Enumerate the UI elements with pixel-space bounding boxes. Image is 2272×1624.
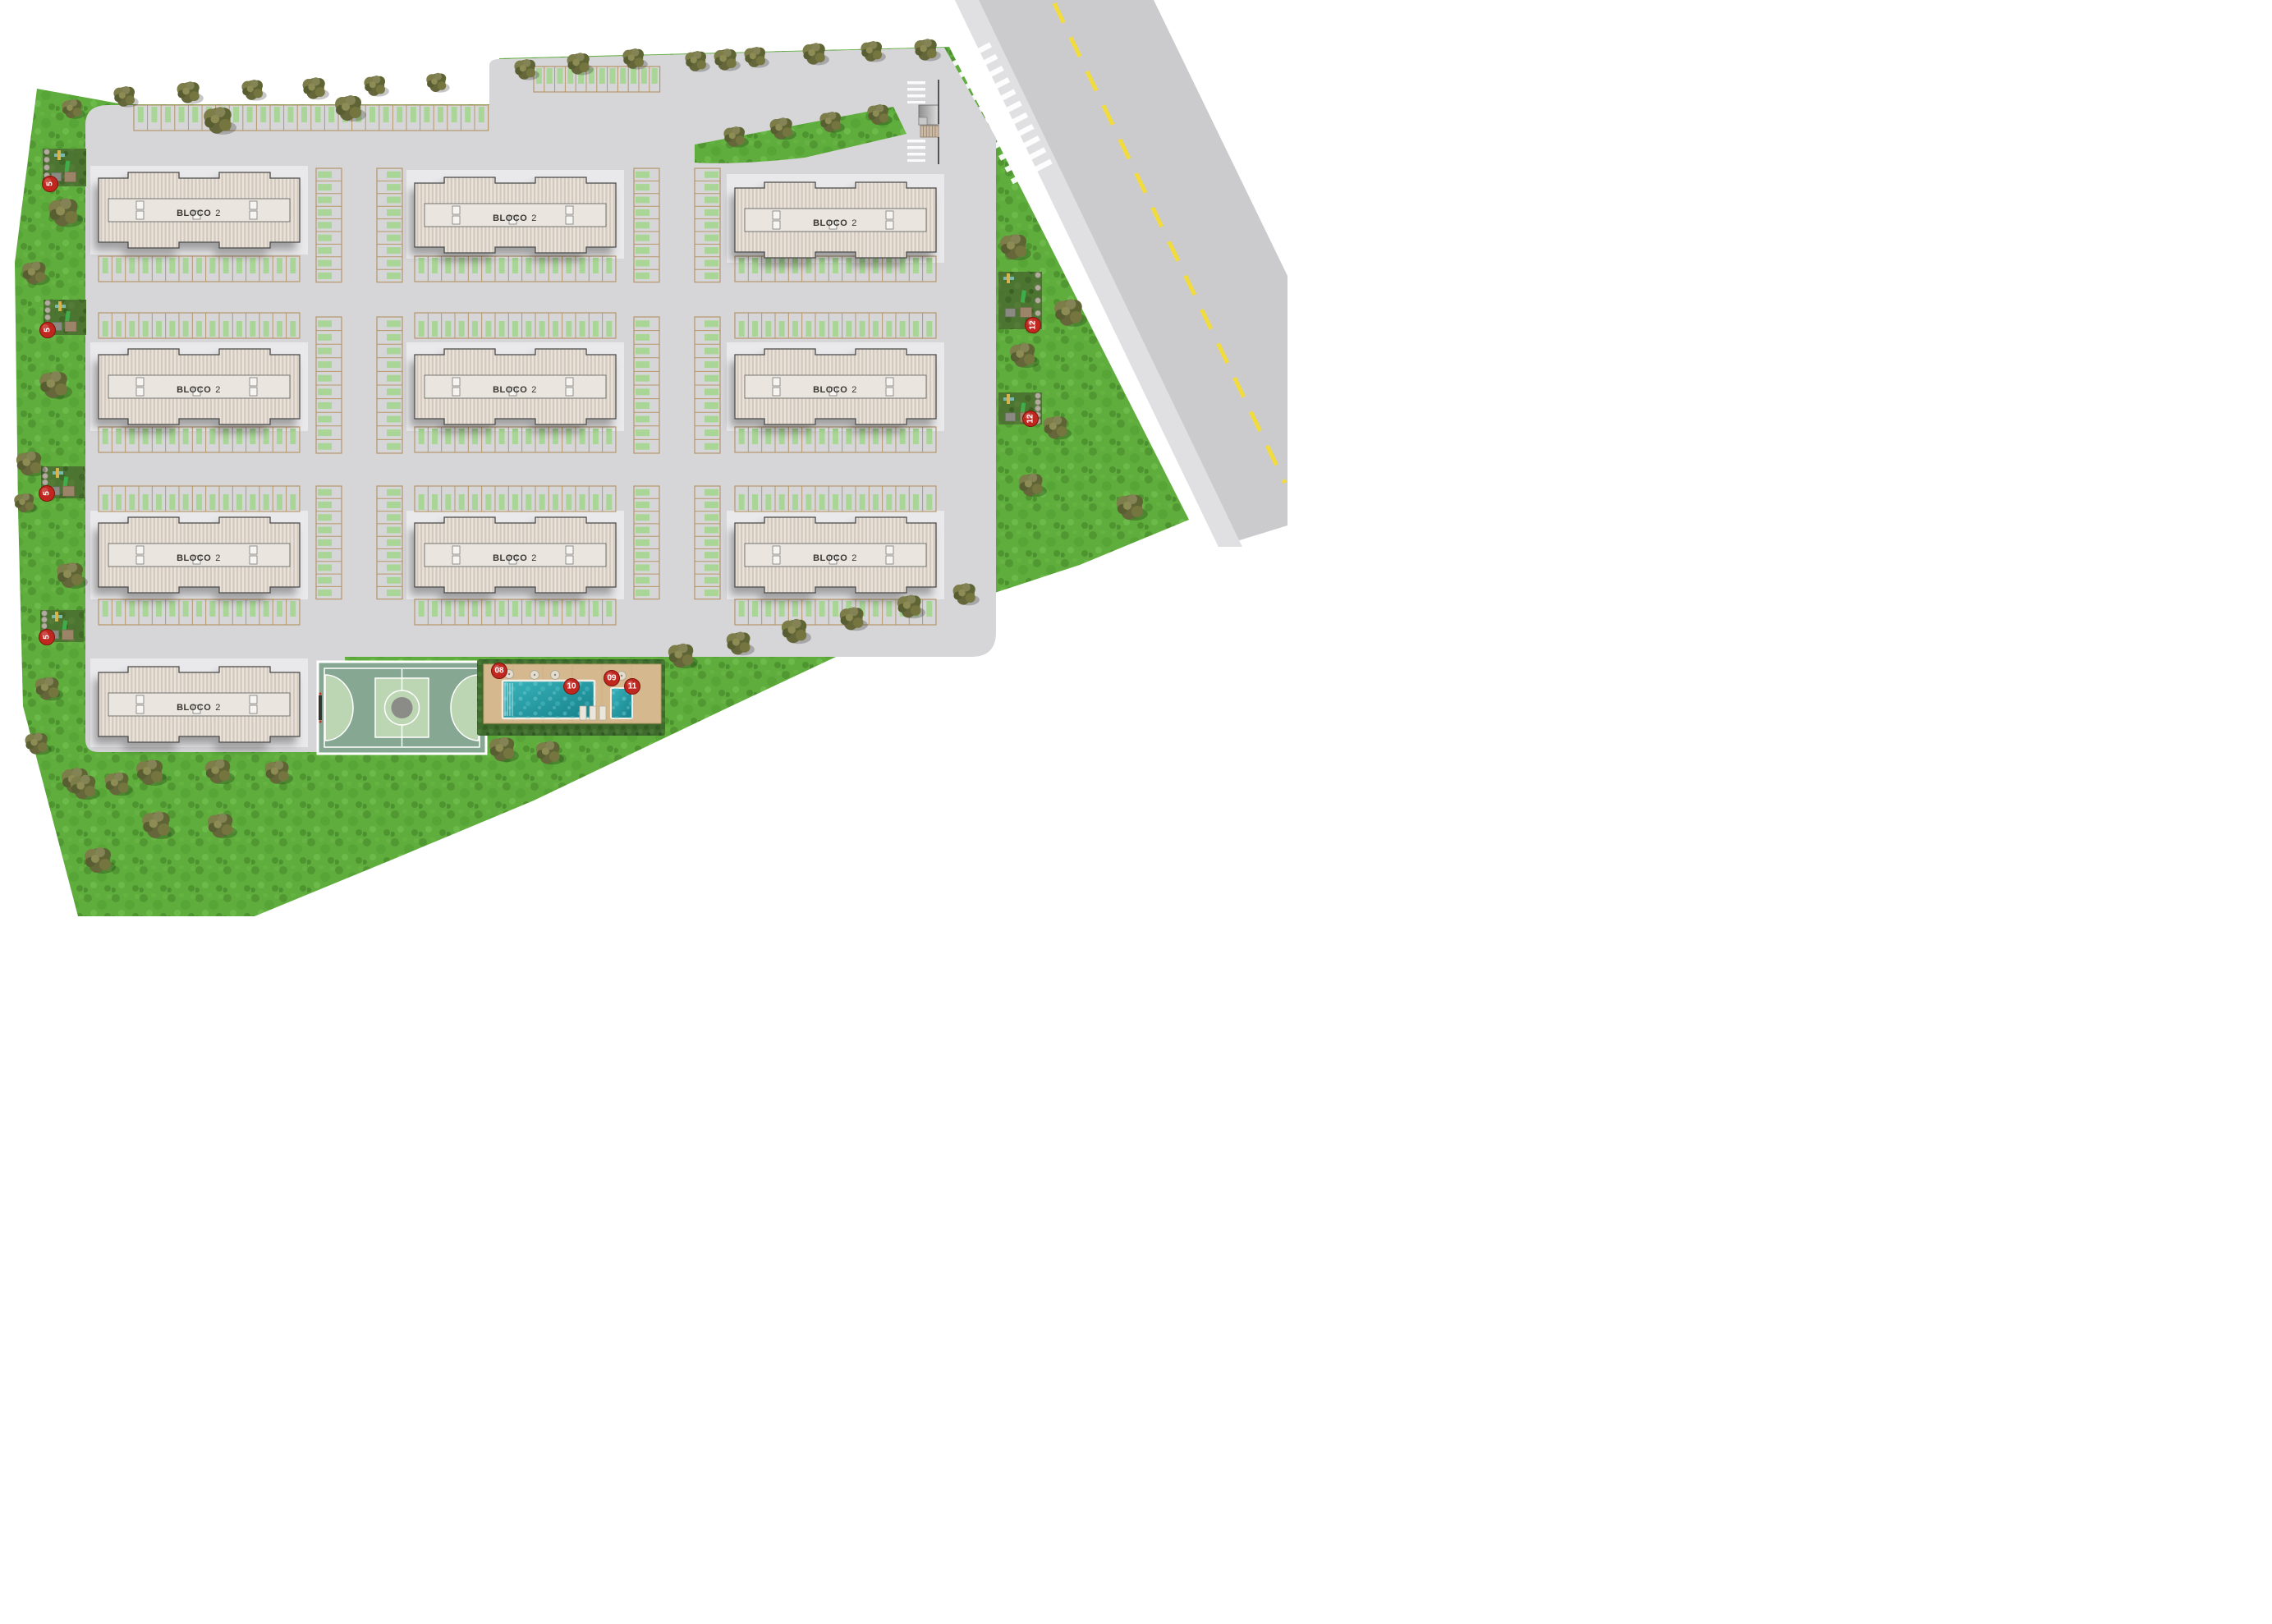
stall-green-paver bbox=[209, 258, 215, 273]
building-bloco[interactable]: BLOCO2 bbox=[99, 172, 300, 248]
stall-green-paver bbox=[636, 348, 649, 355]
lounger-icon bbox=[590, 706, 596, 720]
building-label-number: 2 bbox=[215, 703, 221, 713]
stall-green-paver bbox=[512, 601, 518, 617]
stall-green-paver bbox=[387, 489, 401, 496]
stall-green-paver bbox=[566, 601, 571, 617]
play-mat-icon bbox=[1005, 309, 1015, 317]
stall-green-paver bbox=[419, 601, 425, 617]
stair-core bbox=[136, 546, 144, 554]
stall-green-paver bbox=[223, 429, 229, 444]
goal-post-dot bbox=[319, 692, 321, 695]
stair-core bbox=[452, 556, 460, 564]
stall-green-paver bbox=[606, 601, 612, 617]
stall-green-paver bbox=[432, 601, 438, 617]
building-bloco[interactable]: BLOCO2 bbox=[99, 517, 300, 593]
stall-green-paver bbox=[318, 348, 332, 355]
stall-green-paver bbox=[512, 429, 518, 444]
stall-green-paver bbox=[636, 429, 649, 436]
stall-green-paver bbox=[223, 258, 229, 273]
stall-green-paver bbox=[539, 321, 545, 337]
stall-green-paver bbox=[264, 258, 269, 273]
stall-green-paver bbox=[196, 429, 202, 444]
stall-green-paver bbox=[169, 429, 175, 444]
stall-green-paver bbox=[636, 361, 649, 368]
stall-green-paver bbox=[652, 68, 658, 84]
stall-green-paver bbox=[819, 321, 825, 337]
stall-green-paver bbox=[739, 258, 745, 273]
stall-green-paver bbox=[566, 321, 571, 337]
stall-green-paver bbox=[419, 258, 425, 273]
stall-green-paver bbox=[318, 527, 332, 534]
stall-green-paver bbox=[705, 577, 718, 584]
numbered-marker-icon[interactable]: 5 bbox=[43, 177, 58, 192]
pebble-border-icon bbox=[42, 623, 48, 629]
stair-core bbox=[250, 695, 257, 704]
stall-green-paver bbox=[705, 416, 718, 423]
stall-green-paver bbox=[459, 494, 465, 510]
seesaw-cross-icon bbox=[56, 468, 59, 478]
stall-green-paver bbox=[580, 601, 585, 617]
parasol-pole-dot bbox=[554, 674, 556, 676]
stall-green-paver bbox=[301, 107, 307, 122]
stall-green-paver bbox=[580, 258, 585, 273]
stall-green-paver bbox=[387, 247, 401, 254]
stall-green-paver bbox=[387, 502, 401, 508]
stall-green-paver bbox=[765, 258, 771, 273]
stall-green-paver bbox=[387, 375, 401, 382]
stall-green-paver bbox=[705, 235, 718, 241]
numbered-marker-icon[interactable]: 09 bbox=[604, 671, 620, 686]
stall-green-paver bbox=[318, 514, 332, 521]
stall-green-paver bbox=[806, 321, 811, 337]
stair-core bbox=[250, 211, 257, 219]
stall-green-paver bbox=[445, 321, 451, 337]
stall-green-paver bbox=[566, 429, 571, 444]
numbered-marker-icon[interactable]: 5 bbox=[40, 323, 56, 338]
stall-green-paver bbox=[705, 320, 718, 327]
stall-green-paver bbox=[792, 429, 798, 444]
stair-core bbox=[566, 216, 573, 224]
stair-core bbox=[566, 206, 573, 214]
stall-green-paver bbox=[318, 247, 332, 254]
stair-core bbox=[136, 695, 144, 704]
stall-green-paver bbox=[779, 494, 785, 510]
stair-core bbox=[452, 206, 460, 214]
stall-green-paver bbox=[387, 388, 401, 395]
stall-green-paver bbox=[287, 107, 293, 122]
stall-green-paver bbox=[387, 197, 401, 204]
stall-green-paver bbox=[445, 429, 451, 444]
stall-green-paver bbox=[819, 601, 825, 617]
stall-green-paver bbox=[641, 68, 647, 84]
stall-green-paver bbox=[432, 258, 438, 273]
stall-green-paver bbox=[264, 601, 269, 617]
stall-green-paver bbox=[165, 107, 171, 122]
building-bloco[interactable]: BLOCO2 bbox=[415, 517, 616, 593]
marker-number: 10 bbox=[567, 682, 576, 691]
stall-green-paver bbox=[156, 258, 162, 273]
stall-green-paver bbox=[151, 107, 157, 122]
stall-green-paver bbox=[277, 601, 282, 617]
stall-green-paver bbox=[636, 489, 649, 496]
stall-green-paver bbox=[499, 429, 505, 444]
stall-green-paver bbox=[315, 107, 321, 122]
pebble-border-icon bbox=[45, 307, 51, 313]
stair-core bbox=[136, 378, 144, 386]
building-label-name: BLOCO bbox=[813, 218, 847, 228]
stall-green-paver bbox=[833, 601, 838, 617]
building-label-number: 2 bbox=[531, 385, 537, 395]
stall-green-paver bbox=[223, 321, 229, 337]
stall-green-paver bbox=[472, 258, 478, 273]
stall-green-paver bbox=[116, 429, 122, 444]
stall-green-paver bbox=[387, 320, 401, 327]
entrance-stairs-icon bbox=[920, 126, 939, 137]
stall-green-paver bbox=[318, 235, 332, 241]
tree-icon bbox=[426, 73, 450, 93]
stall-green-paver bbox=[260, 107, 266, 122]
stall-green-paver bbox=[705, 539, 718, 546]
stair-core bbox=[773, 221, 780, 229]
building-bloco[interactable]: BLOCO2 bbox=[735, 182, 936, 258]
pebble-border-icon bbox=[45, 300, 51, 306]
stall-green-paver bbox=[183, 321, 189, 337]
pebble-border-icon bbox=[1035, 406, 1041, 411]
stall-green-paver bbox=[183, 429, 189, 444]
stall-green-paver bbox=[792, 601, 798, 617]
stall-green-paver bbox=[512, 321, 518, 337]
stall-green-paver bbox=[318, 577, 332, 584]
play-mat-icon bbox=[1005, 413, 1015, 421]
goal-post-dot bbox=[319, 720, 321, 723]
stall-green-paver bbox=[397, 107, 402, 122]
building-label-name: BLOCO bbox=[177, 703, 211, 713]
stall-green-paver bbox=[636, 247, 649, 254]
stall-green-paver bbox=[846, 321, 851, 337]
stall-green-paver bbox=[705, 172, 718, 178]
stall-green-paver bbox=[328, 107, 334, 122]
stall-green-paver bbox=[846, 494, 851, 510]
pebble-border-icon bbox=[44, 165, 50, 171]
pebble-border-icon bbox=[1035, 393, 1041, 399]
stall-green-paver bbox=[264, 494, 269, 510]
stall-green-paver bbox=[247, 107, 253, 122]
stall-green-paver bbox=[209, 429, 215, 444]
pebble-border-icon bbox=[1035, 310, 1041, 316]
stall-green-paver bbox=[485, 258, 491, 273]
stair-core bbox=[886, 211, 893, 219]
stall-green-paver bbox=[752, 601, 758, 617]
stair-core bbox=[136, 211, 144, 219]
stall-green-paver bbox=[599, 68, 605, 84]
sports-court bbox=[318, 662, 486, 754]
stall-green-paver bbox=[636, 209, 649, 216]
stall-green-paver bbox=[485, 429, 491, 444]
stall-green-paver bbox=[116, 321, 122, 337]
numbered-marker-icon[interactable]: 11 bbox=[625, 679, 640, 695]
stair-core bbox=[250, 556, 257, 564]
stall-green-paver bbox=[900, 258, 906, 273]
stair-core bbox=[136, 201, 144, 209]
marker-number: 11 bbox=[628, 682, 637, 691]
stall-green-paver bbox=[485, 494, 491, 510]
stall-green-paver bbox=[636, 197, 649, 204]
stall-green-paver bbox=[485, 601, 491, 617]
stall-green-paver bbox=[318, 197, 332, 204]
stall-green-paver bbox=[636, 375, 649, 382]
numbered-marker-icon[interactable]: 5 bbox=[39, 486, 55, 502]
stair-core bbox=[136, 388, 144, 396]
stall-green-paver bbox=[593, 601, 599, 617]
stall-green-paver bbox=[459, 601, 465, 617]
stall-green-paver bbox=[387, 527, 401, 534]
stall-green-paver bbox=[472, 494, 478, 510]
stall-green-paver bbox=[169, 494, 175, 510]
stall-green-paver bbox=[547, 68, 553, 84]
stall-green-paver bbox=[819, 258, 825, 273]
stall-green-paver bbox=[636, 235, 649, 241]
stall-green-paver bbox=[606, 494, 612, 510]
stall-green-paver bbox=[886, 258, 892, 273]
stall-green-paver bbox=[318, 539, 332, 546]
stall-green-paver bbox=[143, 429, 149, 444]
stair-core bbox=[886, 546, 893, 554]
stair-core bbox=[250, 378, 257, 386]
stall-green-paver bbox=[873, 429, 879, 444]
stall-green-paver bbox=[143, 321, 149, 337]
stall-green-paver bbox=[873, 258, 879, 273]
stall-green-paver bbox=[129, 429, 135, 444]
stall-green-paver bbox=[779, 321, 785, 337]
stall-green-paver bbox=[926, 494, 932, 510]
numbered-marker-icon[interactable]: 08 bbox=[492, 663, 507, 679]
stall-green-paver bbox=[459, 258, 465, 273]
parasol-pole-dot bbox=[534, 674, 535, 676]
stall-green-paver bbox=[318, 334, 332, 341]
stall-green-paver bbox=[445, 494, 451, 510]
stair-core bbox=[773, 388, 780, 396]
building-label-name: BLOCO bbox=[813, 553, 847, 563]
stall-green-paver bbox=[432, 429, 438, 444]
stall-green-paver bbox=[318, 590, 332, 596]
marker-number: 12 bbox=[1029, 320, 1038, 330]
stall-green-paver bbox=[636, 388, 649, 395]
stall-green-paver bbox=[705, 375, 718, 382]
stall-green-paver bbox=[566, 258, 571, 273]
stall-green-paver bbox=[383, 107, 389, 122]
marker-number: 09 bbox=[607, 674, 617, 683]
stair-core bbox=[250, 201, 257, 209]
stall-green-paver bbox=[318, 361, 332, 368]
stall-green-paver bbox=[886, 601, 892, 617]
pebble-border-icon bbox=[42, 611, 48, 617]
stall-green-paver bbox=[183, 601, 189, 617]
stall-green-paver bbox=[636, 320, 649, 327]
stall-green-paver bbox=[318, 172, 332, 178]
lounger-icon bbox=[599, 706, 606, 720]
stall-green-paver bbox=[739, 429, 745, 444]
numbered-marker-icon[interactable]: 10 bbox=[564, 679, 580, 695]
stall-green-paver bbox=[169, 258, 175, 273]
stall-green-paver bbox=[387, 222, 401, 228]
stall-green-paver bbox=[387, 443, 401, 450]
stall-green-paver bbox=[705, 334, 718, 341]
site-plan-canvas: BLOCO2BLOCO2BLOCO2BLOCO2BLOCO2BLOCO2BLOC… bbox=[0, 0, 1287, 920]
stair-core bbox=[452, 388, 460, 396]
stall-green-paver bbox=[860, 429, 865, 444]
stall-green-paver bbox=[636, 590, 649, 596]
stall-green-paver bbox=[277, 258, 282, 273]
stall-green-paver bbox=[277, 321, 282, 337]
stall-green-paver bbox=[705, 514, 718, 521]
stall-green-paver bbox=[913, 494, 919, 510]
numbered-marker-icon[interactable]: 12 bbox=[1023, 411, 1039, 427]
stall-green-paver bbox=[424, 107, 429, 122]
stall-green-paver bbox=[553, 601, 558, 617]
stair-core bbox=[773, 211, 780, 219]
stall-green-paver bbox=[636, 273, 649, 279]
stall-green-paver bbox=[779, 601, 785, 617]
building-bloco[interactable]: BLOCO2 bbox=[99, 349, 300, 424]
stall-green-paver bbox=[779, 258, 785, 273]
stall-green-paver bbox=[264, 321, 269, 337]
stall-green-paver bbox=[196, 258, 202, 273]
guardhouse-annex bbox=[919, 117, 927, 125]
building-bloco[interactable]: BLOCO2 bbox=[99, 667, 300, 742]
stall-green-paver bbox=[103, 321, 108, 337]
stall-green-paver bbox=[886, 429, 892, 444]
stall-green-paver bbox=[472, 321, 478, 337]
stall-green-paver bbox=[580, 321, 585, 337]
stall-green-paver bbox=[277, 429, 282, 444]
stall-green-paver bbox=[419, 321, 425, 337]
stall-green-paver bbox=[318, 184, 332, 190]
stall-green-paver bbox=[318, 320, 332, 327]
stall-green-paver bbox=[806, 494, 811, 510]
stall-green-paver bbox=[432, 494, 438, 510]
building-bloco[interactable]: BLOCO2 bbox=[735, 349, 936, 424]
stall-green-paver bbox=[318, 416, 332, 423]
court-center-disc bbox=[392, 697, 413, 718]
stall-green-paver bbox=[819, 494, 825, 510]
building-label-number: 2 bbox=[531, 553, 537, 563]
building-bloco[interactable]: BLOCO2 bbox=[415, 349, 616, 424]
stall-green-paver bbox=[926, 601, 932, 617]
stall-green-paver bbox=[873, 601, 879, 617]
building-bloco[interactable]: BLOCO2 bbox=[415, 177, 616, 253]
stall-green-paver bbox=[250, 429, 255, 444]
pebble-border-icon bbox=[1035, 399, 1041, 405]
stall-green-paver bbox=[819, 429, 825, 444]
stall-green-paver bbox=[846, 429, 851, 444]
stall-green-paver bbox=[593, 321, 599, 337]
stall-green-paver bbox=[103, 258, 108, 273]
stall-green-paver bbox=[636, 184, 649, 190]
stall-green-paver bbox=[900, 494, 906, 510]
stall-green-paver bbox=[387, 348, 401, 355]
stall-green-paver bbox=[183, 258, 189, 273]
stall-green-paver bbox=[580, 429, 585, 444]
marker-number: 12 bbox=[1026, 414, 1035, 424]
stall-green-paver bbox=[459, 429, 465, 444]
stall-green-paver bbox=[765, 429, 771, 444]
stall-green-paver bbox=[705, 209, 718, 216]
marker-number: 08 bbox=[494, 667, 504, 676]
stall-green-paver bbox=[387, 361, 401, 368]
stall-green-paver bbox=[752, 321, 758, 337]
stall-green-paver bbox=[387, 514, 401, 521]
stall-green-paver bbox=[553, 258, 558, 273]
stall-green-paver bbox=[318, 222, 332, 228]
tree-icon bbox=[241, 80, 266, 101]
stair-core bbox=[566, 556, 573, 564]
numbered-marker-icon[interactable]: 5 bbox=[39, 630, 55, 645]
numbered-marker-icon[interactable]: 12 bbox=[1026, 318, 1041, 333]
stall-green-paver bbox=[636, 402, 649, 409]
stall-green-paver bbox=[779, 429, 785, 444]
stall-green-paver bbox=[103, 494, 108, 510]
court-left-goal-icon bbox=[319, 695, 322, 720]
stall-green-paver bbox=[129, 494, 135, 510]
stall-green-paver bbox=[636, 334, 649, 341]
stall-green-paver bbox=[209, 321, 215, 337]
stall-green-paver bbox=[539, 429, 545, 444]
stall-green-paver bbox=[411, 107, 416, 122]
stall-green-paver bbox=[539, 258, 545, 273]
seesaw-cross-icon bbox=[57, 150, 61, 160]
stall-green-paver bbox=[499, 258, 505, 273]
stall-green-paver bbox=[318, 402, 332, 409]
stall-green-paver bbox=[705, 247, 718, 254]
stall-green-paver bbox=[318, 388, 332, 395]
stall-green-paver bbox=[387, 590, 401, 596]
stair-core bbox=[566, 546, 573, 554]
building-label-number: 2 bbox=[851, 218, 857, 228]
stall-green-paver bbox=[705, 260, 718, 267]
stall-green-paver bbox=[387, 416, 401, 423]
stall-green-paver bbox=[290, 601, 296, 617]
stall-green-paver bbox=[705, 564, 718, 571]
stall-green-paver bbox=[636, 564, 649, 571]
stall-green-paver bbox=[129, 321, 135, 337]
stall-green-paver bbox=[765, 601, 771, 617]
stall-green-paver bbox=[318, 502, 332, 508]
stall-green-paver bbox=[606, 321, 612, 337]
stall-green-paver bbox=[209, 601, 215, 617]
stall-green-paver bbox=[900, 321, 906, 337]
stall-green-paver bbox=[183, 494, 189, 510]
stair-core bbox=[136, 705, 144, 713]
stall-green-paver bbox=[250, 258, 255, 273]
stall-green-paver bbox=[705, 502, 718, 508]
stall-green-paver bbox=[499, 321, 505, 337]
stall-green-paver bbox=[913, 258, 919, 273]
stall-green-paver bbox=[432, 321, 438, 337]
stall-green-paver bbox=[250, 494, 255, 510]
stall-green-paver bbox=[156, 601, 162, 617]
stall-green-paver bbox=[913, 321, 919, 337]
stair-core bbox=[566, 388, 573, 396]
stair-core bbox=[566, 378, 573, 386]
stall-green-paver bbox=[169, 601, 175, 617]
stall-green-paver bbox=[223, 494, 229, 510]
pebble-border-icon bbox=[44, 157, 50, 163]
stall-green-paver bbox=[472, 429, 478, 444]
stall-green-paver bbox=[886, 494, 892, 510]
building-bloco[interactable]: BLOCO2 bbox=[735, 517, 936, 593]
building-label-name: BLOCO bbox=[177, 209, 211, 218]
